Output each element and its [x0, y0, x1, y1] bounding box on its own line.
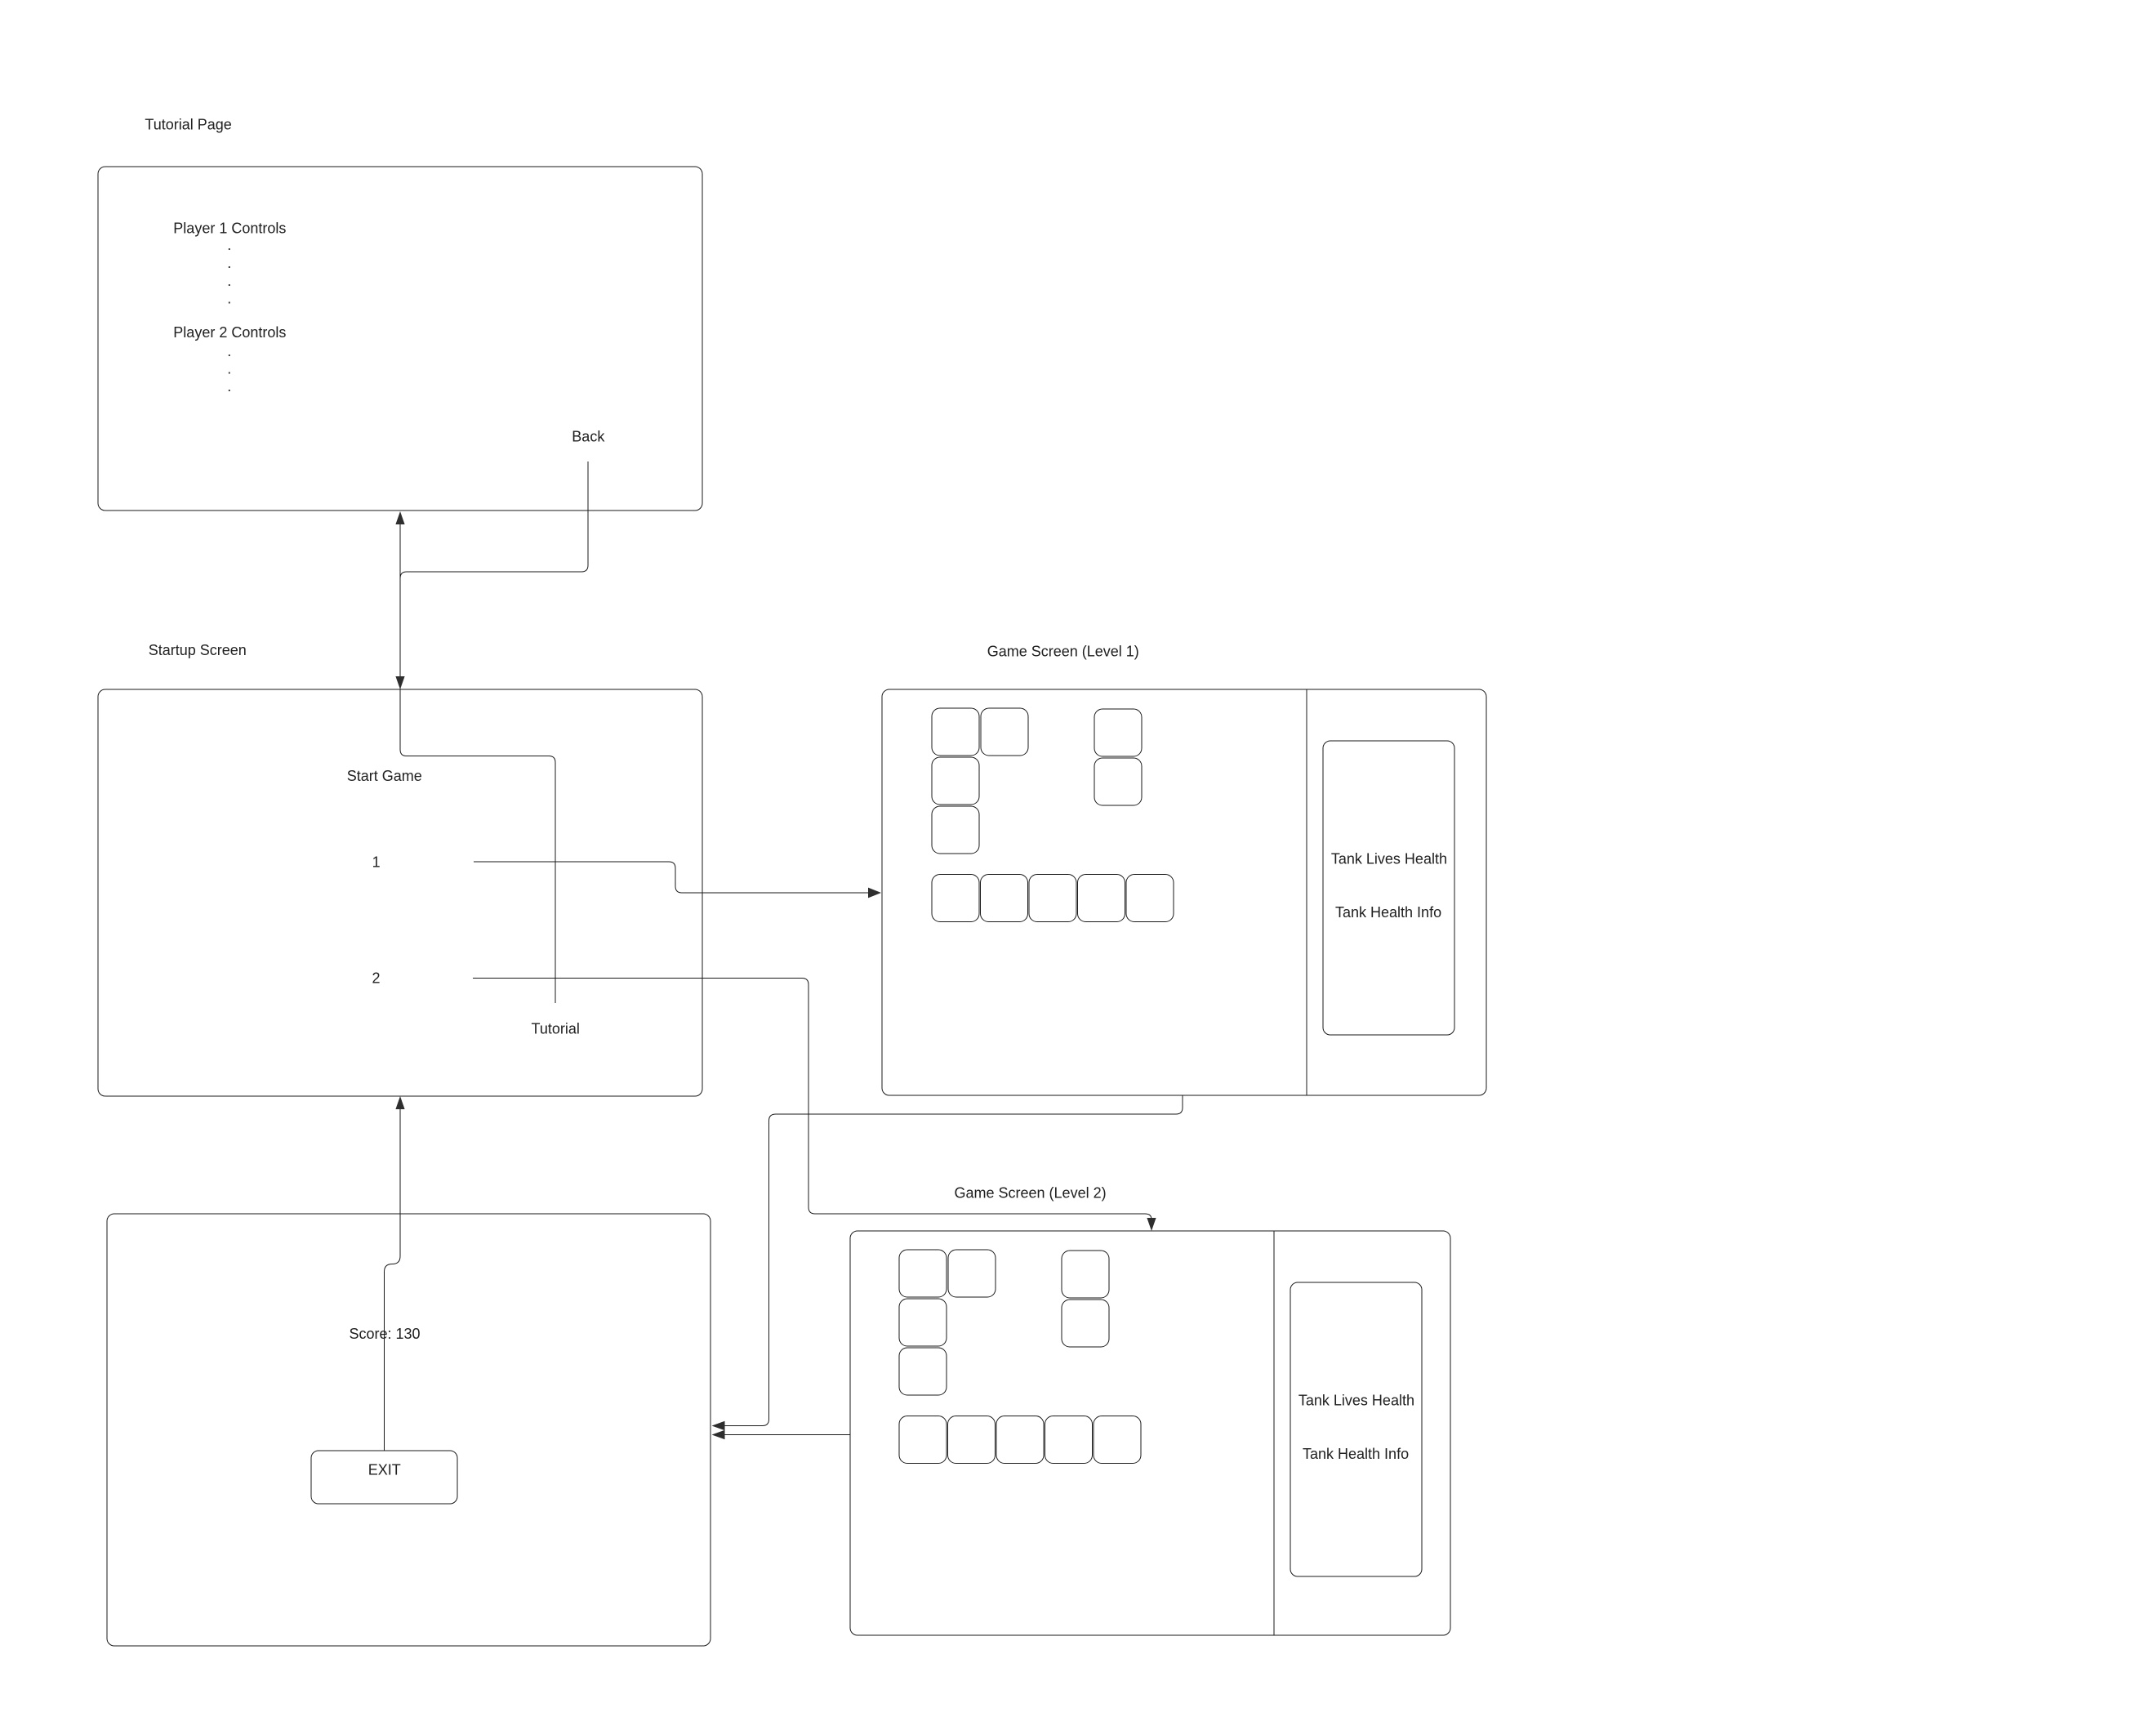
- svg-text:.: .: [227, 237, 231, 253]
- svg-text:.: .: [227, 378, 231, 395]
- svg-text:.: .: [227, 291, 231, 307]
- svg-text:.: .: [227, 273, 231, 289]
- svg-text:Tank Lives Health: Tank Lives Health: [1331, 851, 1447, 867]
- svg-text:Game Screen (Level 1): Game Screen (Level 1): [987, 644, 1139, 660]
- svg-text:Tank Health Info: Tank Health Info: [1335, 904, 1441, 921]
- svg-text:.: .: [227, 360, 231, 377]
- svg-text:Tutorial Page: Tutorial Page: [145, 117, 231, 133]
- svg-text:Score: 130: Score: 130: [350, 1326, 421, 1342]
- svg-text:Game Screen (Level 2): Game Screen (Level 2): [955, 1185, 1107, 1202]
- svg-text:Player 1 Controls: Player 1 Controls: [173, 220, 286, 236]
- svg-text:2: 2: [372, 970, 381, 987]
- svg-text:Back: Back: [572, 429, 605, 445]
- svg-text:.: .: [227, 343, 231, 359]
- svg-text:Start Game: Start Game: [347, 768, 422, 784]
- svg-text:Tank Lives Health: Tank Lives Health: [1298, 1393, 1414, 1409]
- svg-text:EXIT: EXIT: [368, 1462, 401, 1478]
- svg-text:1: 1: [372, 854, 381, 871]
- svg-text:Tank Health Info: Tank Health Info: [1303, 1446, 1409, 1462]
- svg-text:.: .: [227, 255, 231, 271]
- svg-text:Tutorial: Tutorial: [532, 1021, 580, 1037]
- svg-text:Startup Screen: Startup Screen: [149, 642, 247, 658]
- svg-text:Player 2 Controls: Player 2 Controls: [173, 324, 286, 341]
